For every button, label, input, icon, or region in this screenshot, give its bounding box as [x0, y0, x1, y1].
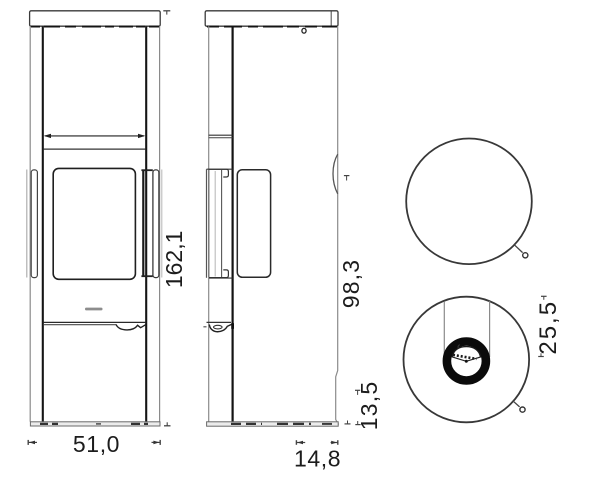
svg-text:162,1: 162,1 — [161, 231, 187, 289]
svg-text:98,3: 98,3 — [338, 259, 364, 309]
svg-text:13,5: 13,5 — [356, 381, 382, 431]
svg-text:14,8: 14,8 — [294, 446, 341, 472]
svg-text:51,0: 51,0 — [73, 431, 120, 457]
svg-text:25,5: 25,5 — [535, 300, 562, 355]
